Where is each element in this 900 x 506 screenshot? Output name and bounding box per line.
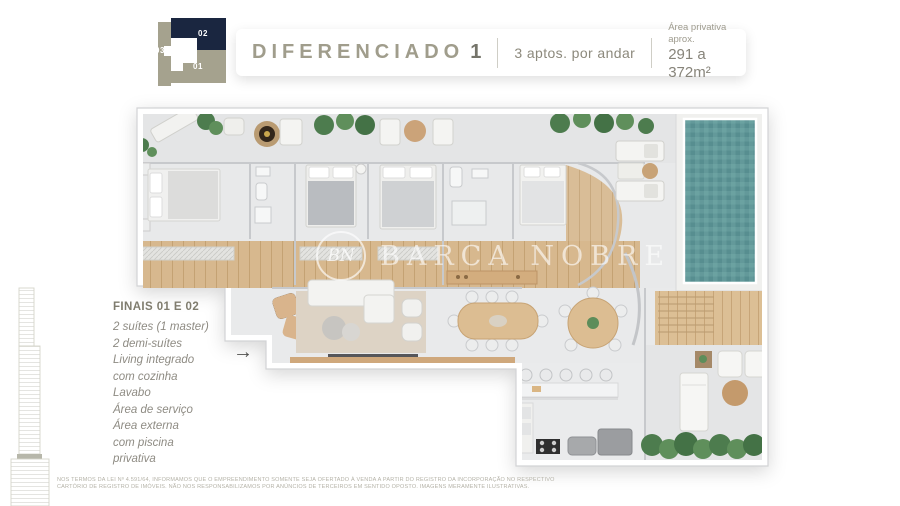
features-heading: FINAIS 01 E 02 (113, 301, 253, 313)
keyplan-core-notch (171, 38, 197, 63)
keyplan-label-02: 02 (198, 29, 208, 38)
disclaimer-line-2: CARTÓRIO DE REGISTRO DE IMÓVEIS. NÃO NOS… (57, 484, 747, 491)
private-area-block: Área privativa aprox. 291 a 372m² (668, 22, 730, 83)
feature-line: 2 suítes (1 master) (113, 319, 253, 336)
coffee-table (322, 316, 346, 340)
feature-line: com cozinha (113, 369, 253, 386)
feature-line: Área de serviço (113, 402, 253, 419)
pool (684, 119, 756, 283)
keyplan-core-notch (171, 63, 183, 71)
feature-line: Lavabo (113, 385, 253, 402)
sun-loungers (616, 141, 664, 201)
apartments-per-floor: 3 aptos. por andar (514, 45, 635, 61)
plan-title: DIFERENCIADO (252, 41, 464, 64)
divider (651, 38, 652, 68)
tv (328, 354, 418, 357)
header-card: DIFERENCIADO 1 3 aptos. por andar Área p… (236, 29, 746, 76)
private-area-label: Área privativa aprox. (668, 22, 730, 46)
keyplan-label-01: 01 (193, 62, 203, 71)
feature-line: Área externa (113, 418, 253, 435)
disclaimer-line-1: NOS TERMOS DA LEI Nº 4.591/64, INFORMAMO… (57, 477, 747, 484)
page: 02 01 03 DIFERENCIADO 1 3 aptos. por and… (0, 0, 900, 506)
cooktop (536, 439, 560, 454)
appliance (598, 429, 632, 455)
daybed (680, 373, 708, 431)
plan-title-number: 1 (470, 41, 481, 64)
feature-line: privativa (113, 451, 253, 468)
buffet (447, 271, 537, 284)
feature-line: Living integrado (113, 352, 253, 369)
tower-sketch (6, 286, 52, 506)
appliance (568, 437, 596, 455)
feature-line: com piscina (113, 435, 253, 452)
keyplan-core-notch (164, 46, 174, 56)
divider (497, 38, 498, 68)
legal-disclaimer: NOS TERMOS DA LEI Nº 4.591/64, INFORMAMO… (57, 477, 747, 491)
unit-features: FINAIS 01 E 02 2 suítes (1 master) 2 dem… (113, 301, 253, 468)
unit-keyplan: 02 01 03 (158, 18, 226, 86)
fire-pit (254, 121, 280, 147)
feature-line: 2 demi-suítes (113, 336, 253, 353)
private-area-value: 291 a 372m² (668, 46, 730, 84)
keyplan-label-03: 03 (155, 46, 165, 55)
